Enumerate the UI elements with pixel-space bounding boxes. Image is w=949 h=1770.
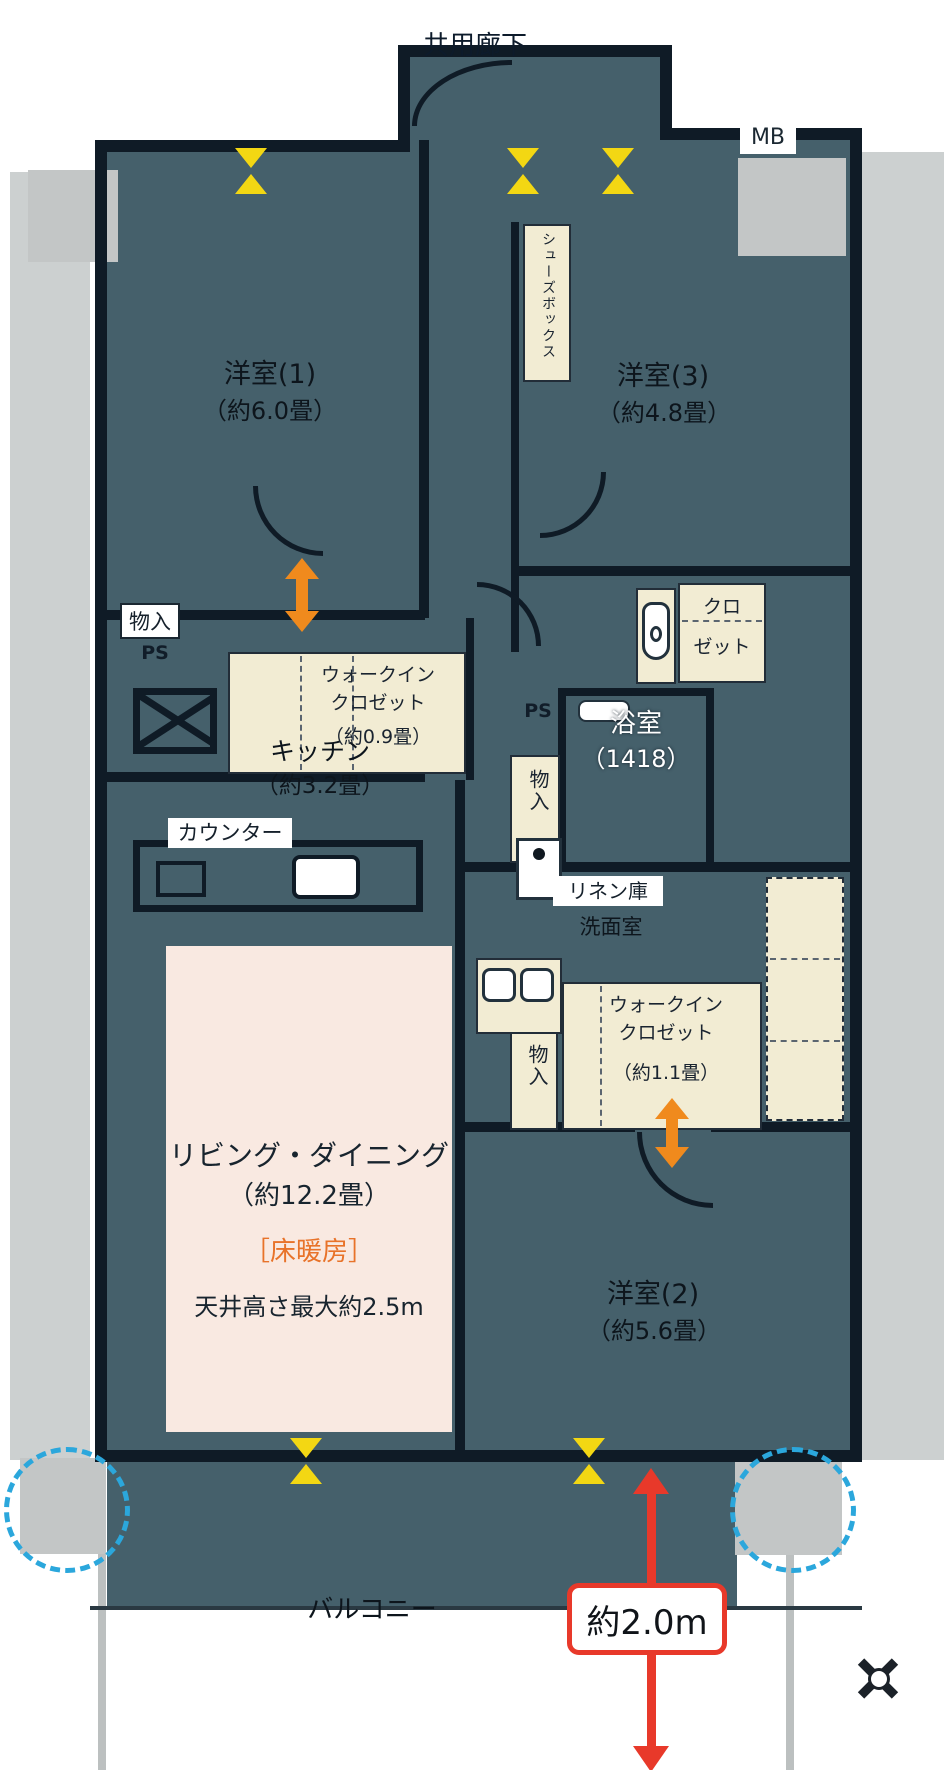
toilet-bowl — [650, 626, 662, 642]
washroom-name: 洗面室 — [556, 914, 666, 940]
right-shelf-column — [766, 877, 844, 1121]
closet-line1: クロ — [678, 596, 766, 620]
wic-small-line1: ウォークイン — [290, 664, 466, 688]
linen-label: リネン庫 — [553, 876, 663, 906]
living-dining-size: （約12.2畳） — [166, 1180, 452, 1213]
left-balcony-rail — [10, 172, 90, 1460]
living-dining-name: リビング・ダイニング — [166, 1138, 452, 1173]
room2-size: （約5.6畳） — [572, 1316, 736, 1346]
room1-name: 洋室(1) — [195, 358, 345, 392]
pillar-leg-left — [98, 1554, 106, 1770]
monoire-label-bottom: 物入 — [523, 1044, 552, 1088]
bath-size: （1418） — [570, 744, 702, 774]
wall-right — [850, 128, 862, 1462]
room2-name: 洋室(2) — [578, 1278, 728, 1312]
kitchen-counter — [133, 840, 423, 912]
pillar-circle-right — [730, 1447, 856, 1573]
divider-dashed — [770, 958, 840, 960]
room3-size: （約4.8畳） — [582, 398, 746, 428]
bath-name: 浴室 — [576, 708, 696, 741]
window-icon-top-1 — [234, 148, 270, 194]
wic-small-size: （約0.9畳） — [290, 726, 466, 750]
kitchen-size: （約3.2畳） — [238, 772, 402, 801]
floor-heating-label: ［床暖房］ — [166, 1236, 452, 1269]
wall-alcove-right — [660, 45, 672, 140]
floor-plan: リビング・ダイニング （約12.2畳） ［床暖房］ 天井高さ最大約2.5m 洋室… — [0, 0, 949, 1770]
north-mark-icon — [850, 1650, 906, 1706]
orange-arrow-wic-large — [666, 1118, 678, 1148]
monoire-label-middle: 物入 — [524, 769, 553, 813]
window-icon-bottom-1 — [289, 1438, 325, 1484]
wall-wic-right — [466, 618, 474, 780]
room3-name: 洋室(3) — [588, 360, 738, 394]
mb-label: MB — [740, 124, 796, 154]
divider-dashed — [682, 620, 762, 622]
wall-bottom — [95, 1450, 862, 1462]
wic-small-line2: クロゼット — [290, 692, 466, 716]
wall-left — [95, 140, 107, 1462]
wic-large-line2: クロゼット — [576, 1022, 756, 1046]
vanity-sink-2 — [520, 968, 554, 1002]
vanity-sink-1 — [482, 968, 516, 1002]
pillar-circle-left — [4, 1447, 130, 1573]
pillar-top-right — [738, 158, 846, 256]
window-icon-top-2 — [506, 148, 542, 194]
balcony-edge-line — [90, 1606, 862, 1610]
monoire-box-bottom: 物入 — [510, 1032, 558, 1130]
shoes-box: シューズボックス — [523, 224, 571, 382]
washer-dot — [533, 848, 545, 860]
divider-dashed — [770, 1040, 840, 1042]
ceiling-height-label: 天井高さ最大約2.5m — [166, 1292, 452, 1322]
room1-size: （約6.0畳） — [188, 396, 352, 426]
wall-room3-bottom — [519, 566, 862, 576]
ps-label-2: PS — [516, 700, 560, 724]
kitchen-hob — [156, 861, 206, 897]
orange-arrow-wic-small — [296, 578, 308, 612]
pillar-leg-right — [786, 1555, 794, 1770]
ps-label-1: PS — [131, 642, 179, 666]
stove-box — [133, 688, 217, 754]
wall-living-right — [455, 780, 465, 1462]
corridor-label: 共用廊下 — [405, 30, 545, 63]
window-icon-bottom-2 — [572, 1438, 608, 1484]
dimension-label: 約2.0m — [567, 1583, 727, 1655]
shoes-box-label: シューズボックス — [538, 232, 558, 360]
north-mark-ring — [868, 1668, 890, 1690]
monoire-label-left: 物入 — [120, 603, 180, 639]
closet-line2: ゼット — [678, 636, 766, 660]
wic-large-size: （約1.1畳） — [576, 1062, 756, 1086]
wall-hall-right — [511, 222, 519, 652]
counter-label: カウンター — [168, 818, 292, 848]
wic-large-line1: ウォークイン — [576, 994, 756, 1018]
window-icon-top-3 — [601, 148, 637, 194]
right-balcony-rail — [862, 152, 944, 1460]
balcony-label: バルコニー — [297, 1594, 447, 1627]
wall-hall-spine — [419, 140, 429, 618]
kitchen-sink — [292, 855, 360, 899]
